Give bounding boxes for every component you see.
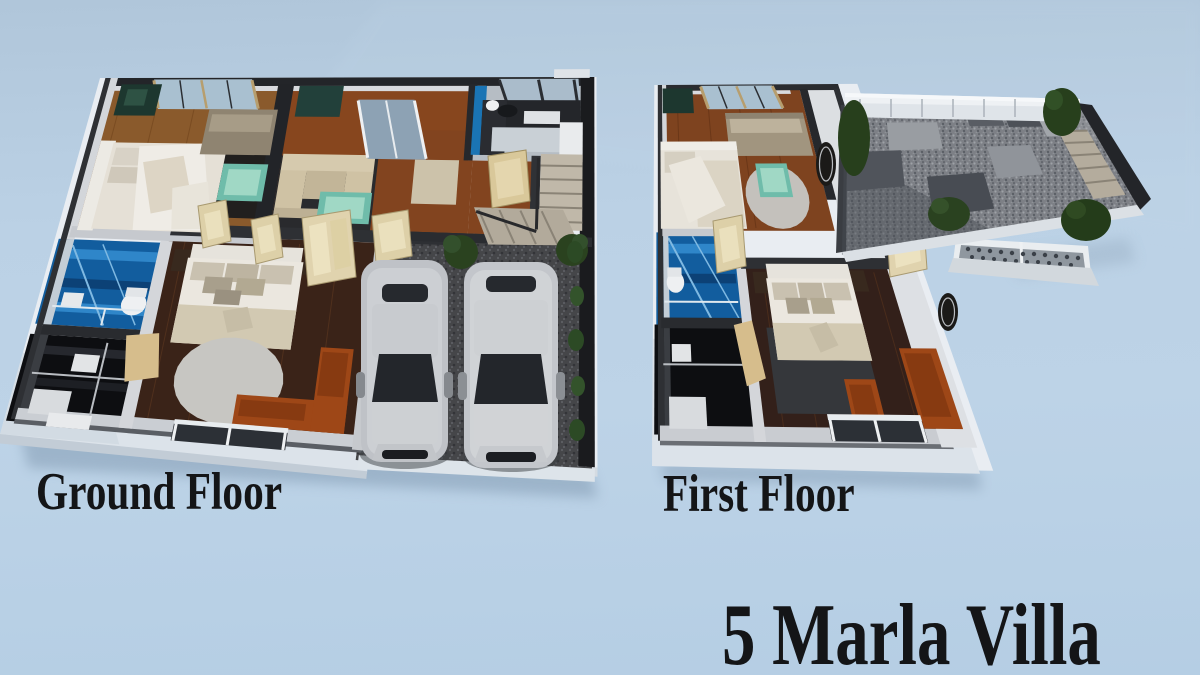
svg-text:First Floor: First Floor bbox=[663, 465, 855, 523]
svg-text:5 Marla Villa: 5 Marla Villa bbox=[722, 585, 1101, 675]
svg-text:Ground Floor: Ground Floor bbox=[36, 463, 282, 521]
